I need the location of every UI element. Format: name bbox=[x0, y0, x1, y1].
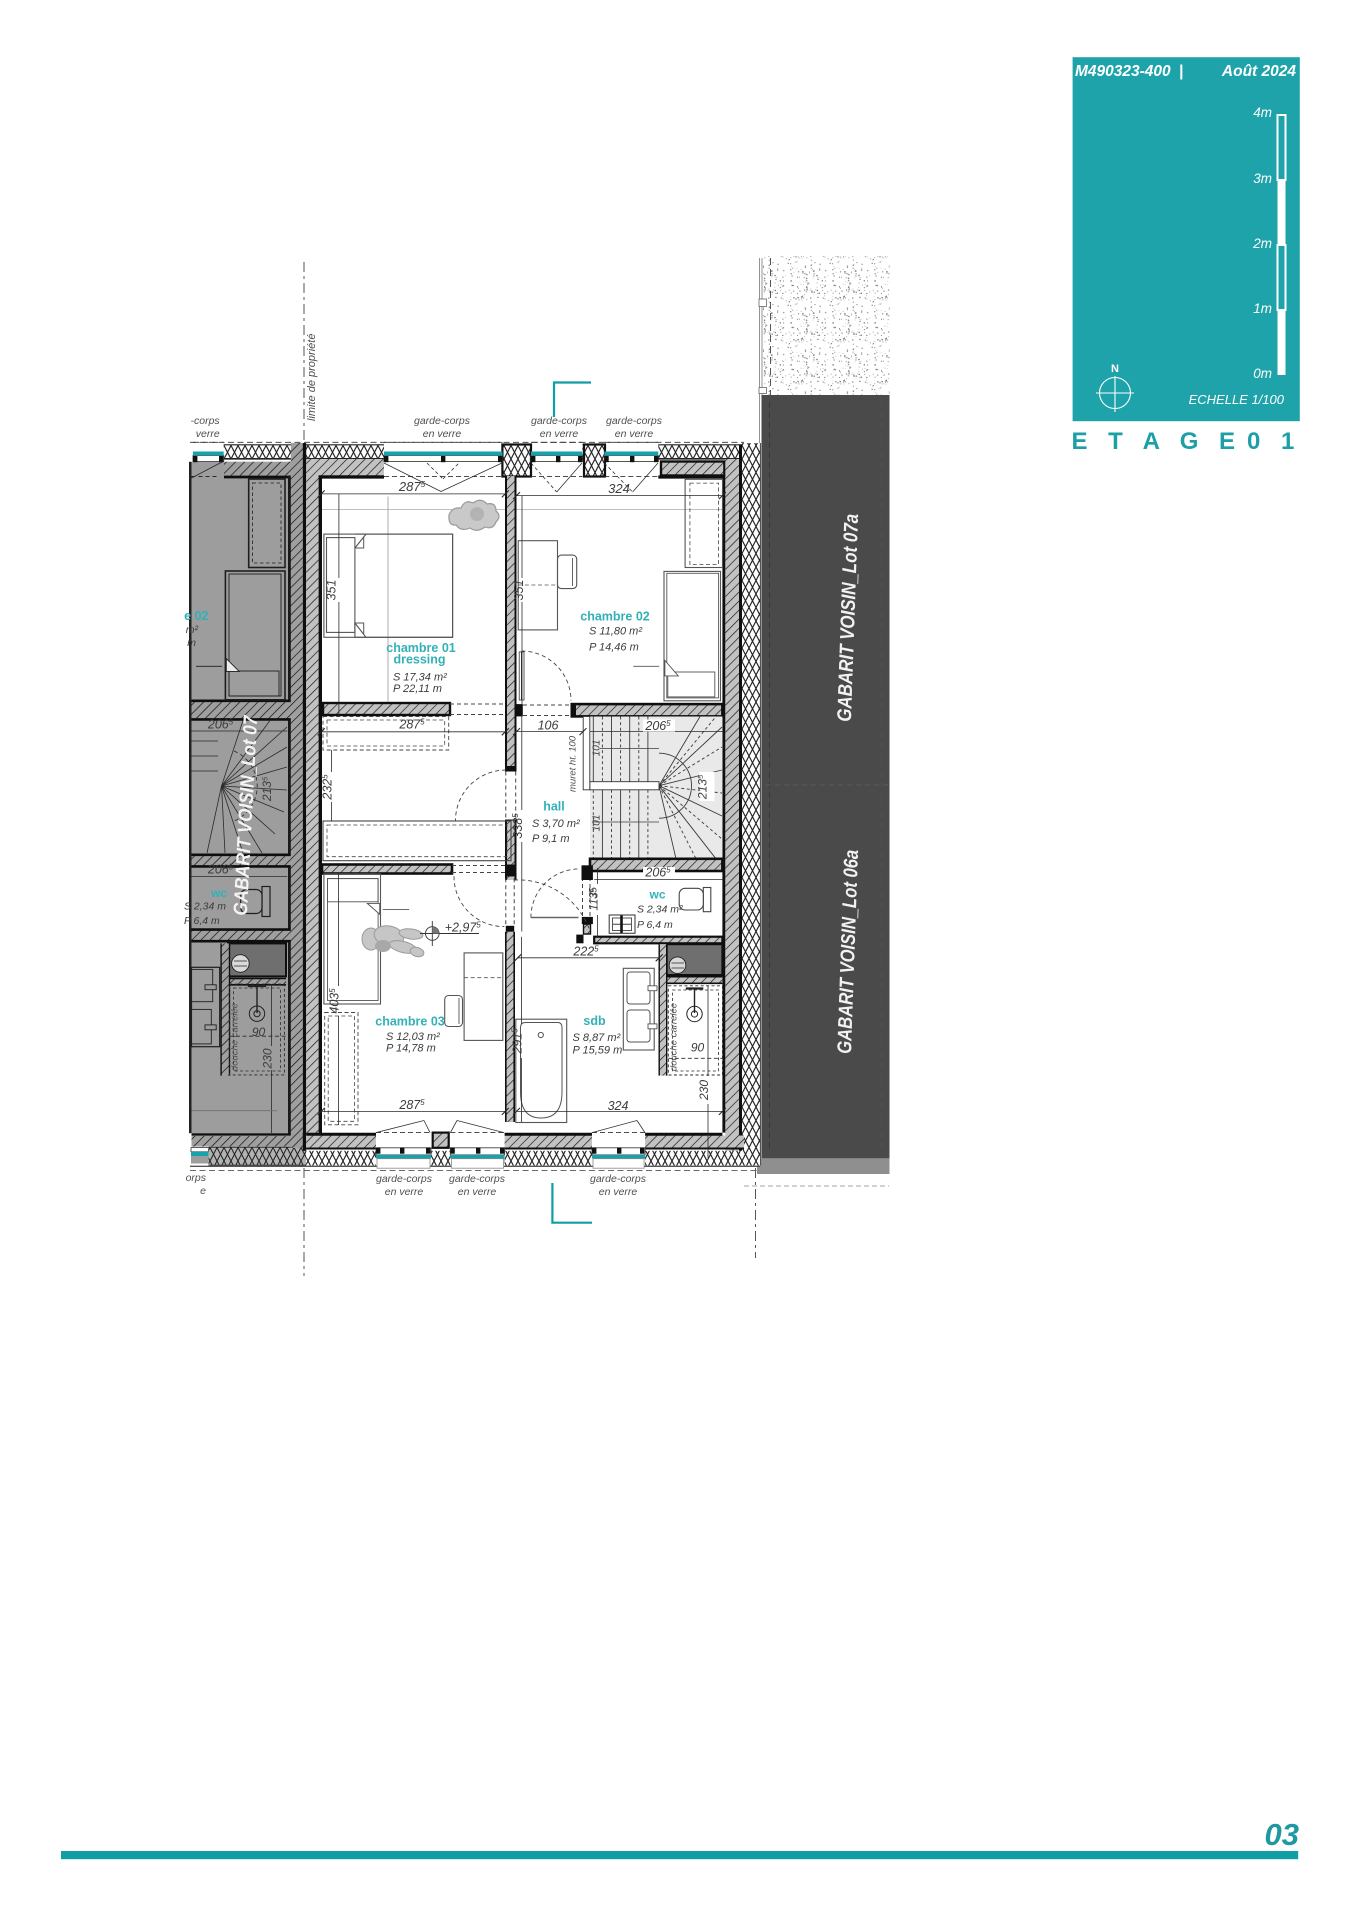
svg-text:0 1: 0 1 bbox=[1247, 428, 1301, 455]
svg-text:S 8,87 m²: S 8,87 m² bbox=[573, 1032, 621, 1044]
svg-text:S 12,03 m²: S 12,03 m² bbox=[386, 1031, 440, 1043]
svg-text:dressing: dressing bbox=[393, 653, 445, 667]
svg-text:en verre: en verre bbox=[385, 1186, 424, 1198]
svg-text:90: 90 bbox=[252, 1025, 266, 1039]
svg-text:P 14,46 m: P 14,46 m bbox=[589, 642, 639, 654]
svg-text:351: 351 bbox=[324, 580, 338, 601]
svg-text:garde-corps: garde-corps bbox=[590, 1173, 647, 1185]
svg-text:351: 351 bbox=[512, 580, 526, 601]
svg-text:en verre: en verre bbox=[615, 428, 654, 440]
svg-text:chambre 03: chambre 03 bbox=[375, 1015, 445, 1029]
svg-text:hall: hall bbox=[543, 800, 565, 814]
svg-text:en verre: en verre bbox=[540, 428, 579, 440]
svg-text:P 6,4 m: P 6,4 m bbox=[637, 919, 673, 931]
svg-text:106: 106 bbox=[538, 719, 559, 733]
svg-text:E T A G E: E T A G E bbox=[1072, 428, 1243, 455]
svg-text:230: 230 bbox=[697, 1080, 711, 1101]
svg-text:en verre: en verre bbox=[423, 428, 462, 440]
svg-text:P 22,11 m: P 22,11 m bbox=[393, 683, 442, 695]
svg-text:P 15,59 m: P 15,59 m bbox=[573, 1045, 623, 1057]
svg-text:verre: verre bbox=[196, 428, 220, 440]
svg-text:4m: 4m bbox=[1253, 105, 1272, 120]
svg-text:douche carrelée: douche carrelée bbox=[230, 1003, 241, 1071]
svg-text:S 2,34 m²: S 2,34 m² bbox=[637, 904, 683, 916]
svg-text:sdb: sdb bbox=[583, 1014, 606, 1028]
svg-text:M490323-400: M490323-400 bbox=[1075, 63, 1171, 80]
svg-text:101: 101 bbox=[592, 815, 603, 832]
svg-text:+2,975: +2,975 bbox=[445, 920, 482, 934]
svg-text:e 02: e 02 bbox=[184, 609, 208, 623]
svg-text:garde-corps: garde-corps bbox=[414, 415, 471, 427]
svg-text:1m: 1m bbox=[1253, 301, 1272, 316]
svg-text:garde-corps: garde-corps bbox=[376, 1173, 433, 1185]
svg-text:35: 35 bbox=[587, 887, 599, 899]
svg-text:muret ht. 100: muret ht. 100 bbox=[568, 735, 579, 792]
svg-text:P 6,4 m: P 6,4 m bbox=[184, 915, 220, 927]
svg-text:garde-corps: garde-corps bbox=[449, 1173, 506, 1185]
svg-text:wc: wc bbox=[648, 888, 665, 902]
svg-text:m²: m² bbox=[186, 624, 199, 636]
svg-text:e: e bbox=[200, 1185, 206, 1197]
svg-text:90: 90 bbox=[691, 1041, 705, 1055]
svg-text:324: 324 bbox=[608, 481, 630, 496]
svg-text:-corps: -corps bbox=[191, 415, 221, 427]
svg-text:N: N bbox=[1111, 363, 1119, 375]
svg-text:2m: 2m bbox=[1252, 236, 1272, 251]
svg-text:P 9,1 m: P 9,1 m bbox=[532, 833, 570, 845]
svg-text:orps: orps bbox=[186, 1172, 207, 1184]
svg-text:en verre: en verre bbox=[458, 1186, 497, 1198]
svg-text:|: | bbox=[1179, 63, 1183, 80]
svg-text:en verre: en verre bbox=[599, 1186, 638, 1198]
svg-text:0m: 0m bbox=[1253, 366, 1272, 381]
svg-text:limite de propriété: limite de propriété bbox=[306, 334, 318, 421]
svg-text:101: 101 bbox=[592, 740, 603, 757]
svg-text:324: 324 bbox=[608, 1099, 629, 1113]
svg-text:S 11,80 m²: S 11,80 m² bbox=[589, 626, 642, 638]
svg-text:03: 03 bbox=[1265, 1817, 1299, 1852]
svg-text:m: m bbox=[187, 637, 196, 649]
svg-text:garde-corps: garde-corps bbox=[606, 415, 663, 427]
svg-text:garde-corps: garde-corps bbox=[531, 415, 588, 427]
svg-text:wc: wc bbox=[210, 886, 227, 900]
svg-text:S 17,34 m²: S 17,34 m² bbox=[393, 672, 447, 684]
svg-text:3m: 3m bbox=[1253, 171, 1272, 186]
svg-text:ECHELLE 1/100: ECHELLE 1/100 bbox=[1189, 392, 1285, 407]
svg-text:P 14,78 m: P 14,78 m bbox=[386, 1043, 436, 1055]
svg-text:chambre 02: chambre 02 bbox=[580, 610, 650, 624]
svg-text:douche carrelée: douche carrelée bbox=[669, 1003, 680, 1071]
svg-text:S 2,34 m: S 2,34 m bbox=[184, 901, 226, 913]
svg-text:Août 2024: Août 2024 bbox=[1221, 63, 1296, 80]
svg-text:S 3,70 m²: S 3,70 m² bbox=[532, 818, 580, 830]
svg-text:230: 230 bbox=[261, 1048, 275, 1069]
